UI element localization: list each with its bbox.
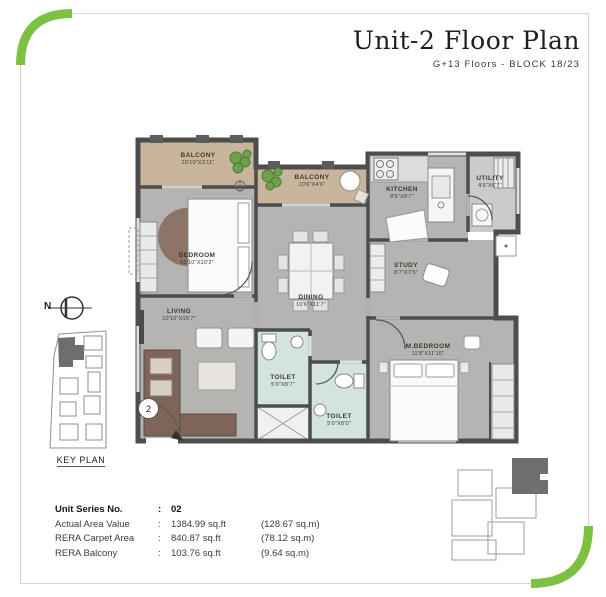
info-label: Unit Series No. [55,503,158,518]
mbedroom-dresser [464,336,480,349]
label-dining: DINING 10'6"X11'7" [296,294,326,309]
sofa-cushion [150,358,172,374]
info-row-actual-area: Actual Area Value : 1384.99 sq.ft (128.6… [55,518,320,533]
info-colon: : [158,518,171,533]
info-value-sqm: (9.64 sq.m) [261,547,320,562]
bed-pillow [426,364,454,377]
label-toilet-2: TOILET 5'0"X8'0" [326,413,351,428]
toilet2-wc-tank [354,374,364,388]
label-study: STUDY 8'7"X7'5" [394,262,418,277]
north-label: N [44,301,51,312]
north-arrow-icon [48,297,92,319]
bedside-table [379,362,388,373]
floor-plan-page: Unit-2 Floor Plan G+13 Floors - BLOCK 18… [0,0,606,597]
label-balcony-1: BALCONY 10'10"X3'11" [181,152,216,167]
living-sofa-chaise [180,414,236,436]
info-colon: : [158,547,171,562]
toilet1-wc [262,342,276,360]
coffee-table [198,362,236,390]
toilet1-wc-tank [262,334,276,342]
info-value-sqft: 1384.99 sq.ft [171,518,261,533]
bed-pillow [394,364,422,377]
toilet2-wc [335,374,353,388]
info-value-sqft: 840.87 sq.ft [171,532,261,547]
bed-pillow [238,247,249,287]
cluster-plan-drawing [452,458,548,560]
label-kitchen: KITCHEN 8'6"X8'7" [386,186,418,201]
info-value-sqft: 103.76 sq.ft [171,547,261,562]
bed-pillow [238,203,249,243]
key-plan-highlight-unit [58,337,84,367]
living-armchair [228,328,254,348]
info-row-rera-carpet: RERA Carpet Area : 840.87 sq.ft (78.12 s… [55,532,320,547]
info-label: RERA Carpet Area [55,532,158,547]
info-label: Actual Area Value [55,518,158,533]
info-row-rera-balcony: RERA Balcony : 103.76 sq.ft (9.64 sq.m) [55,547,320,562]
living-armchair [196,328,222,348]
info-colon: : [158,503,171,518]
balcony-table [340,171,360,191]
unit-info-block: Unit Series No. : 02 Actual Area Value :… [55,503,320,561]
toilet1-basin [291,336,303,348]
label-balcony-2: BALCONY 10'6"X4'6" [295,174,330,189]
bedside-table [460,362,469,373]
sofa-cushion [150,380,172,396]
bedroom-wardrobe [140,222,157,292]
cluster-highlight-unit [512,458,548,494]
info-value-sqm: (78.12 sq.m) [261,532,320,547]
tv-unit [139,310,144,344]
info-value-sqft: 02 [171,503,261,518]
label-living: LIVING 10'10"X15'7" [162,308,196,323]
key-plan-drawing [50,331,106,448]
key-plan-label: KEY PLAN [44,455,118,465]
label-toilet-1: TOILET 5'0"X8'7" [270,374,295,389]
info-value-sqm [261,503,320,518]
toilet2-basin [314,404,326,416]
label-utility: UTILITY 4'6"X6'7" [476,175,503,190]
label-mbedroom: M.BEDROOM 11'8"X11'10" [406,343,451,358]
info-label: RERA Balcony [55,547,158,562]
info-row-unit-series: Unit Series No. : 02 [55,503,320,518]
label-bedroom: BEDROOM 10'10"X10'2" [179,252,216,267]
info-colon: : [158,532,171,547]
entry-marker: 2 [138,398,159,419]
info-value-sqm: (128.67 sq.m) [261,518,320,533]
